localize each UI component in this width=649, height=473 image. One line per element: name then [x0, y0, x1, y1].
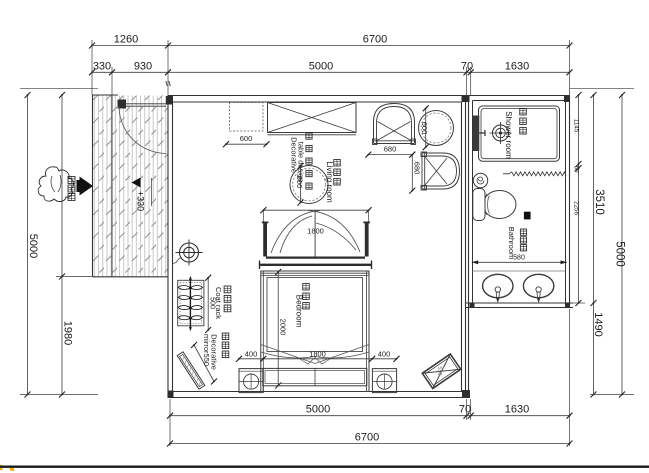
svg-text:1630: 1630: [505, 404, 529, 416]
svg-text:1490: 1490: [592, 312, 604, 336]
svg-text:1800: 1800: [309, 349, 326, 358]
svg-text:330: 330: [93, 60, 111, 72]
svg-text:mirror550: mirror550: [202, 334, 211, 366]
svg-text:1630: 1630: [505, 60, 529, 72]
svg-text:3510: 3510: [593, 189, 605, 215]
svg-text:70: 70: [461, 60, 473, 72]
svg-text:6700: 6700: [363, 34, 387, 46]
svg-text:1260: 1260: [114, 34, 138, 46]
svg-text:6700: 6700: [355, 431, 379, 443]
svg-text:Bedroom: Bedroom: [295, 295, 304, 328]
svg-text:Coat rack: Coat rack: [214, 287, 223, 319]
svg-text:Shower room: Shower room: [504, 111, 513, 159]
svg-text:70: 70: [459, 404, 471, 416]
svg-text:1980: 1980: [62, 321, 74, 345]
svg-text:600: 600: [240, 134, 253, 143]
svg-text:580: 580: [513, 255, 525, 262]
svg-text:+330: +330: [136, 191, 146, 211]
svg-text:5000: 5000: [309, 60, 333, 72]
svg-text:400: 400: [378, 349, 391, 358]
svg-text:680: 680: [384, 145, 397, 154]
svg-text:2256: 2256: [573, 201, 580, 216]
svg-text:600: 600: [420, 122, 429, 135]
svg-text:60: 60: [573, 165, 580, 173]
svg-text:1145: 1145: [573, 119, 580, 133]
svg-text:5000: 5000: [614, 241, 626, 267]
svg-text:680: 680: [413, 162, 422, 175]
svg-text:400: 400: [245, 349, 258, 358]
svg-text:550: 550: [436, 366, 442, 375]
svg-text:5000: 5000: [306, 404, 330, 416]
svg-text:930: 930: [134, 60, 152, 72]
svg-text:5000: 5000: [27, 234, 39, 258]
svg-text:Living room: Living room: [325, 161, 334, 203]
svg-text:600: 600: [295, 176, 304, 189]
svg-text:2000: 2000: [279, 319, 288, 336]
